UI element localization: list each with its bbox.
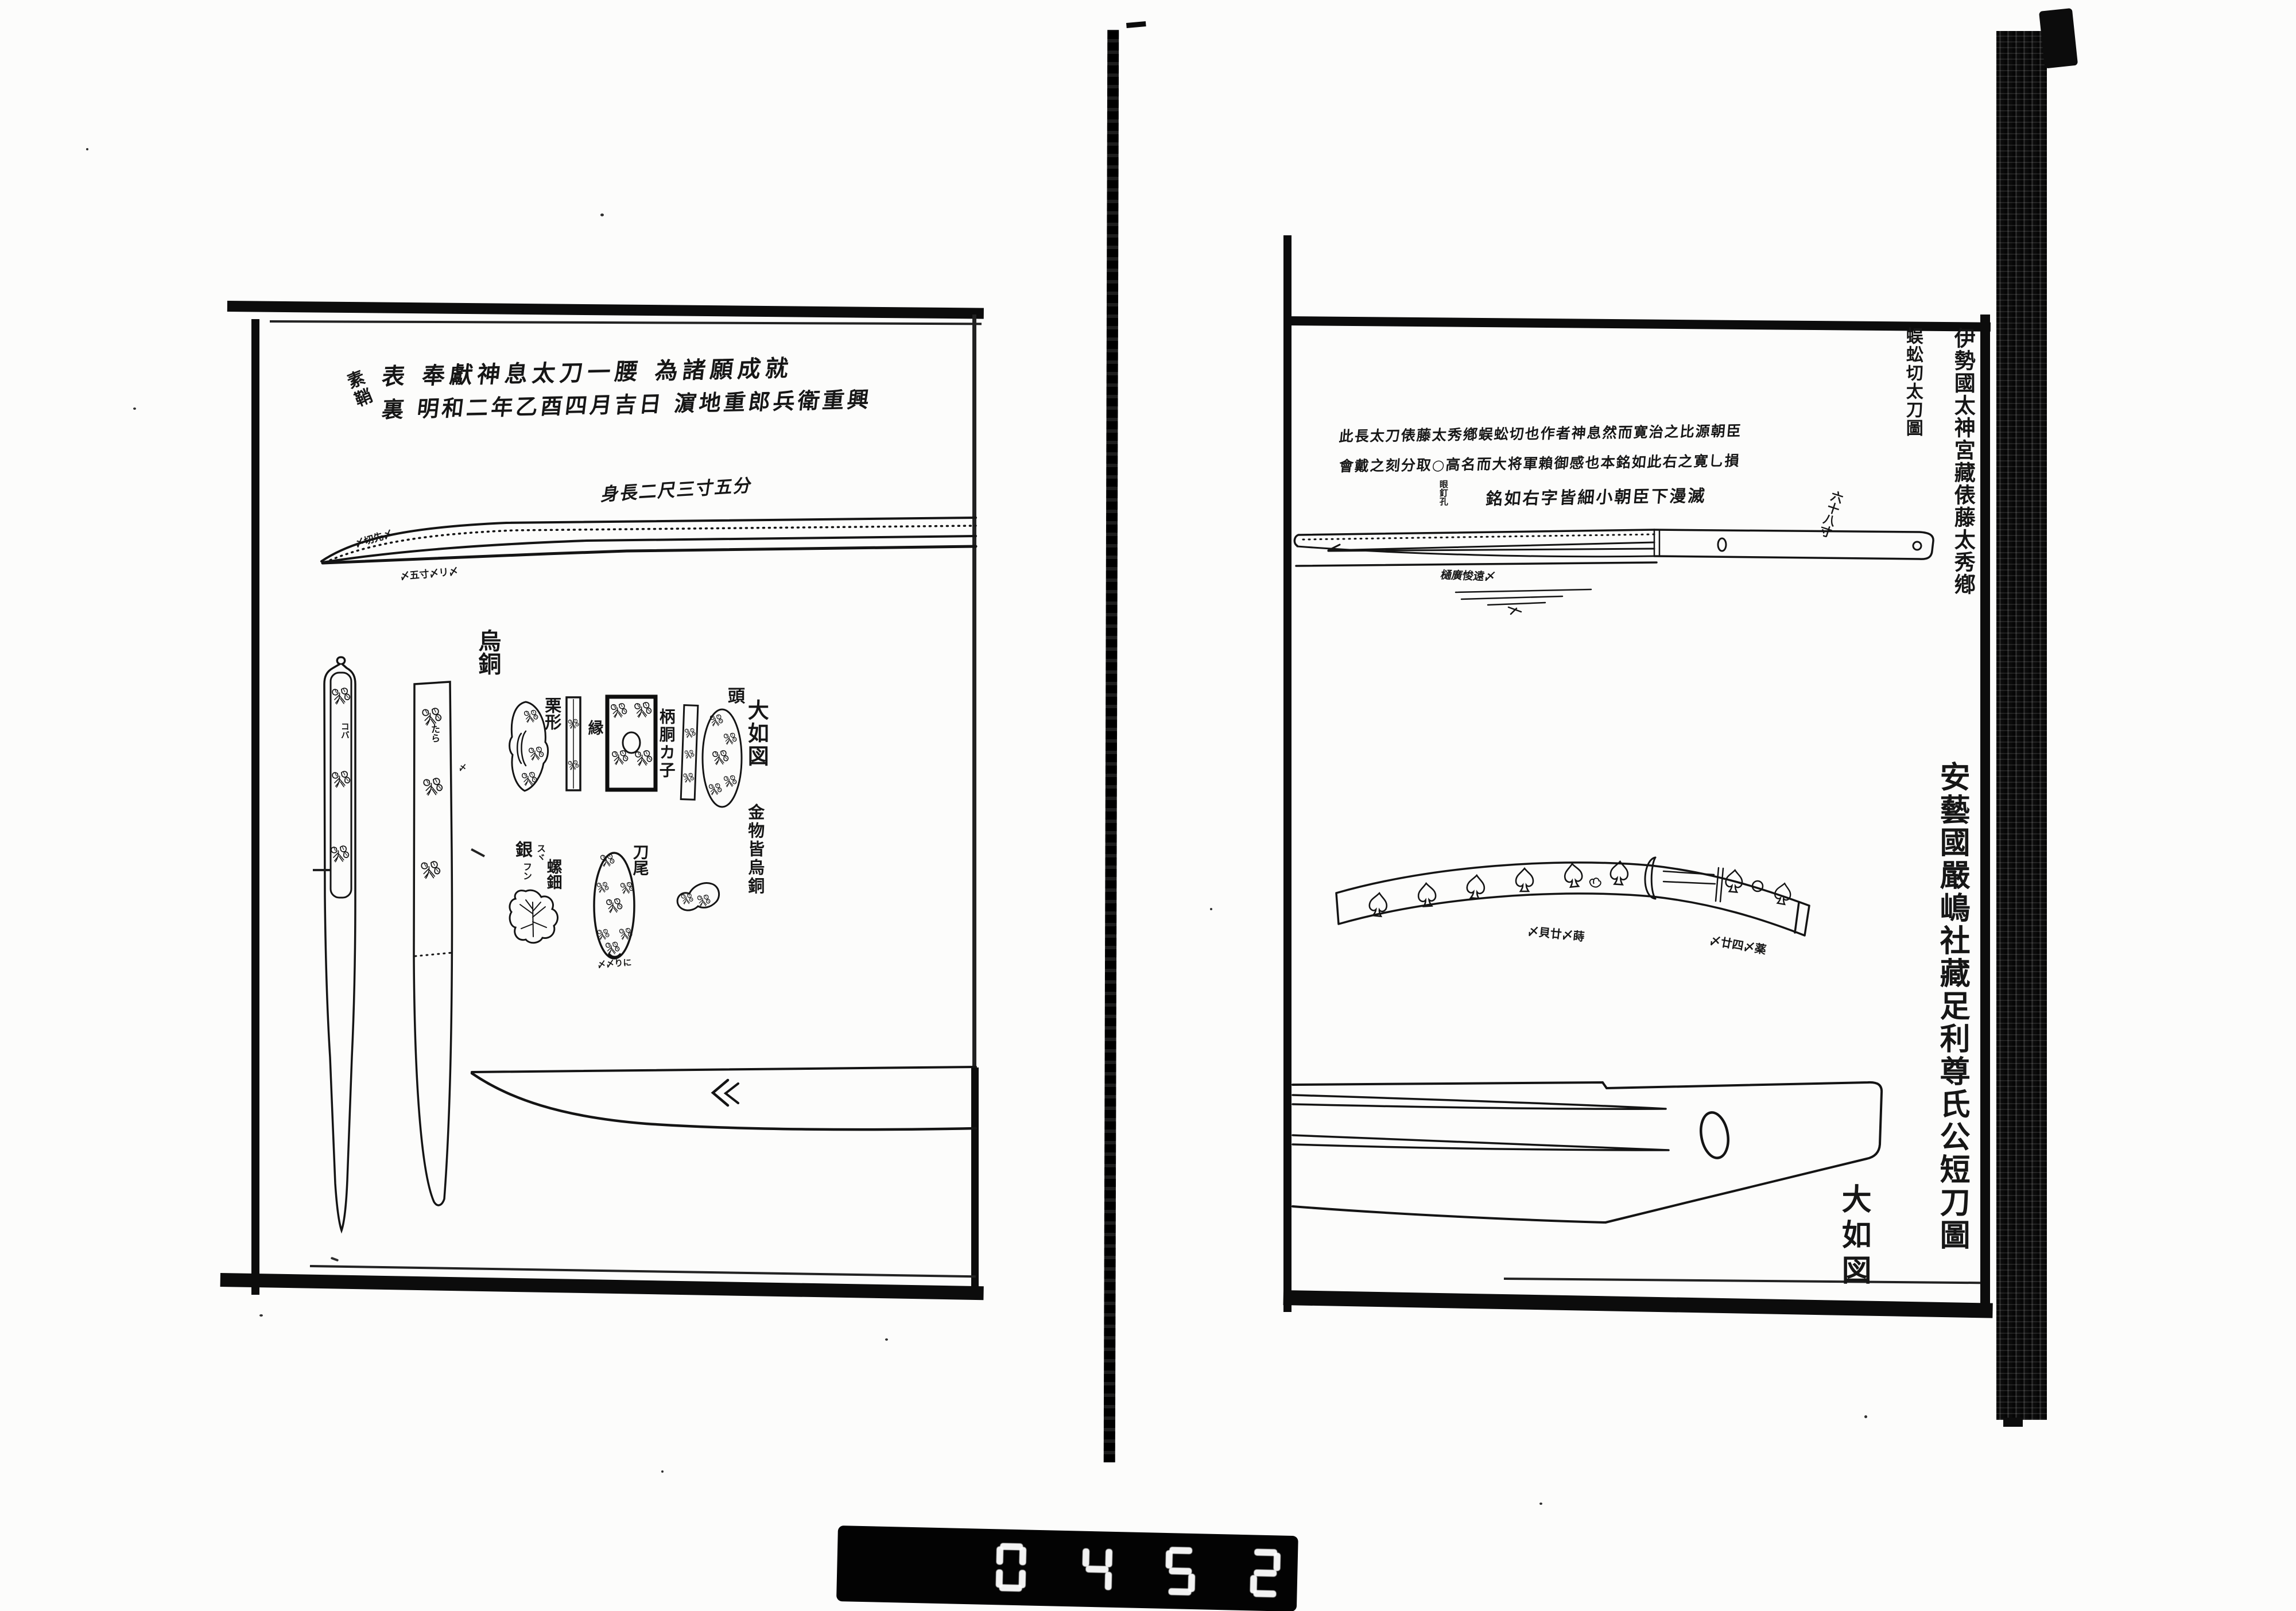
- omote-inscription-line: 表 奉獻神息太刀一腰 為諸願成就: [381, 356, 794, 389]
- kashira-label: 頭: [728, 688, 745, 706]
- mukadegiri-tachi-drawing: [1290, 525, 1945, 577]
- scanner-frame-number-plate: [836, 1525, 1298, 1611]
- leaf-guard-fitting-drawing: [507, 886, 560, 950]
- edge-band-tail-mark: [2003, 1418, 2023, 1427]
- scabbard-kana-marks: たら: [429, 724, 439, 743]
- left-page-frame-bottom: [220, 1273, 984, 1300]
- right-page-frame-bottom: [1283, 1290, 1993, 1318]
- scan-speck: [1539, 1503, 1542, 1505]
- plate-digit: [1250, 1548, 1281, 1597]
- commentary-row-1: 此長太刀俵藤太秀鄕蜈蚣切也作者神息然而寛治之比源朝臣: [1339, 424, 1743, 444]
- mounted-scabbard-drawing: [1329, 847, 1817, 980]
- margin-title-sub: 蜈蚣切太刀圖: [1903, 327, 1922, 437]
- actual-size-note-right: 大如図: [1838, 1183, 1870, 1290]
- fuchi-band-fitting-drawing: [565, 696, 583, 793]
- gutter-top-mark: [1126, 21, 1146, 28]
- sketch-lines: [1453, 588, 1597, 615]
- plate-digit: [995, 1543, 1026, 1591]
- book-scan: 素鞘 表 奉獻神息太刀一腰 為諸願成就 裏 明和二年乙酉四月吉日 濵地重郎兵衛重…: [0, 0, 2296, 1611]
- right-page-frame-bottom-inner: [1504, 1278, 1980, 1284]
- stray-stroke: [471, 848, 485, 857]
- corner-ink-blob: [2039, 8, 2078, 69]
- scan-speck: [661, 1470, 664, 1473]
- scan-speck: [331, 1257, 339, 1262]
- tanto-drawing: [1293, 1077, 1892, 1233]
- lower-margin-title: 安藝國嚴嶋社藏足利尊氏公短刀圖: [1937, 761, 1969, 1252]
- scabbard-side-mark: 〆: [457, 763, 466, 771]
- scan-speck: [885, 1338, 888, 1341]
- peg-hole-note: 眼釘孔: [1438, 480, 1448, 506]
- right-page-frame-right: [1980, 315, 1990, 1313]
- right-page-frame-left: [1283, 235, 1291, 1312]
- right-page-frame-top: [1285, 316, 1991, 332]
- silver-kana-2: フン: [521, 862, 531, 880]
- hilt-body-plate-fitting-drawing: [605, 694, 659, 793]
- scan-speck: [600, 213, 604, 216]
- plain-scabbard-note: 素鞘: [342, 368, 374, 412]
- reference-tick: [313, 869, 330, 871]
- comma-shaped-fitting-drawing: [675, 879, 722, 919]
- left-page-frame-top-inner: [270, 320, 982, 325]
- hilt-body-metal-label: 柄胴カ子: [658, 708, 675, 779]
- band-fitting-drawing: [679, 703, 701, 802]
- kurikata-label: 栗形: [543, 697, 561, 730]
- book-edge-band: [1996, 31, 2047, 1420]
- kojiri-scribble: 〆〆りに: [597, 958, 632, 970]
- plate-digit: [1165, 1547, 1196, 1596]
- crow-copper-label: 烏銅: [475, 629, 499, 675]
- scan-speck: [1210, 908, 1212, 910]
- fittings-material-note: 金物皆烏銅: [746, 803, 764, 895]
- scan-speck: [1864, 1415, 1867, 1418]
- fuchi-label: 縁: [585, 720, 602, 735]
- raden-label: 螺鈿: [544, 859, 561, 890]
- sword-hilt-drawing: [317, 655, 374, 1235]
- scan-speck: [133, 407, 136, 410]
- tachi-blade-drawing: [317, 514, 977, 584]
- scan-speck: [259, 1314, 263, 1317]
- plate-digit: [1081, 1545, 1112, 1594]
- kojiri-oval-fitting-drawing: [591, 849, 637, 962]
- ura-inscription-line: 裏 明和二年乙酉四月吉日 濵地重郎兵衛重興: [381, 388, 873, 421]
- blade-annotation: 樋廣悛遠〆: [1440, 569, 1496, 583]
- left-page-frame-top: [227, 301, 984, 319]
- actual-size-note-left: 大如図: [745, 699, 767, 768]
- book-gutter-shadow: [1104, 30, 1119, 1462]
- commentary-row-2: 會戴之刻分取○高名而大将軍賴御感也本銘如此右之寛乚損: [1339, 453, 1741, 474]
- hilt-kana-marks: コバ: [340, 722, 349, 739]
- left-page-frame-left: [251, 319, 259, 1295]
- silver-label: 銀: [515, 841, 533, 860]
- commentary-row-3: 銘如右字皆細小朝臣下漫滅: [1485, 487, 1707, 508]
- blade-length-note: 身長二尺三寸五分: [600, 476, 754, 504]
- scabbard-drawing: [408, 680, 458, 1216]
- blade-section-drawing: [468, 1063, 977, 1136]
- margin-title-main: 伊勢國太神宮藏俵藤太秀鄕: [1952, 327, 1974, 596]
- silver-kana-1: スヾ: [535, 844, 545, 862]
- kashira-oval-fitting-drawing: [700, 707, 744, 809]
- scan-speck: [86, 148, 88, 150]
